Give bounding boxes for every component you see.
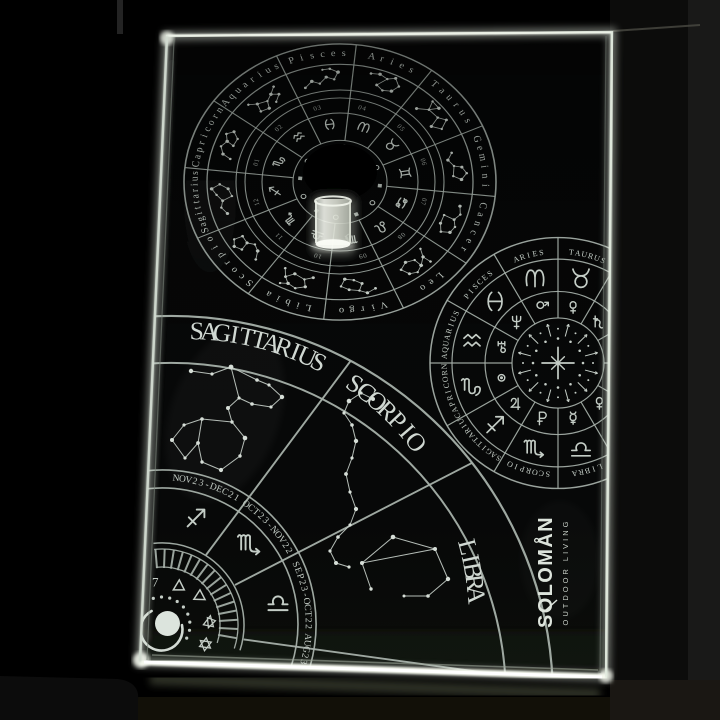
svg-text:7: 7 — [152, 575, 159, 590]
svg-text:S: S — [545, 469, 550, 478]
svg-text:2: 2 — [303, 624, 313, 629]
svg-text:OUTDOOR LIVING: OUTDOOR LIVING — [561, 518, 570, 625]
svg-text:2: 2 — [303, 618, 313, 623]
svg-text:A: A — [461, 584, 492, 605]
svg-text:SOLOMÅN: SOLOMÅN — [533, 516, 557, 628]
svg-text:T: T — [302, 611, 312, 618]
svg-text:N: N — [440, 363, 449, 369]
